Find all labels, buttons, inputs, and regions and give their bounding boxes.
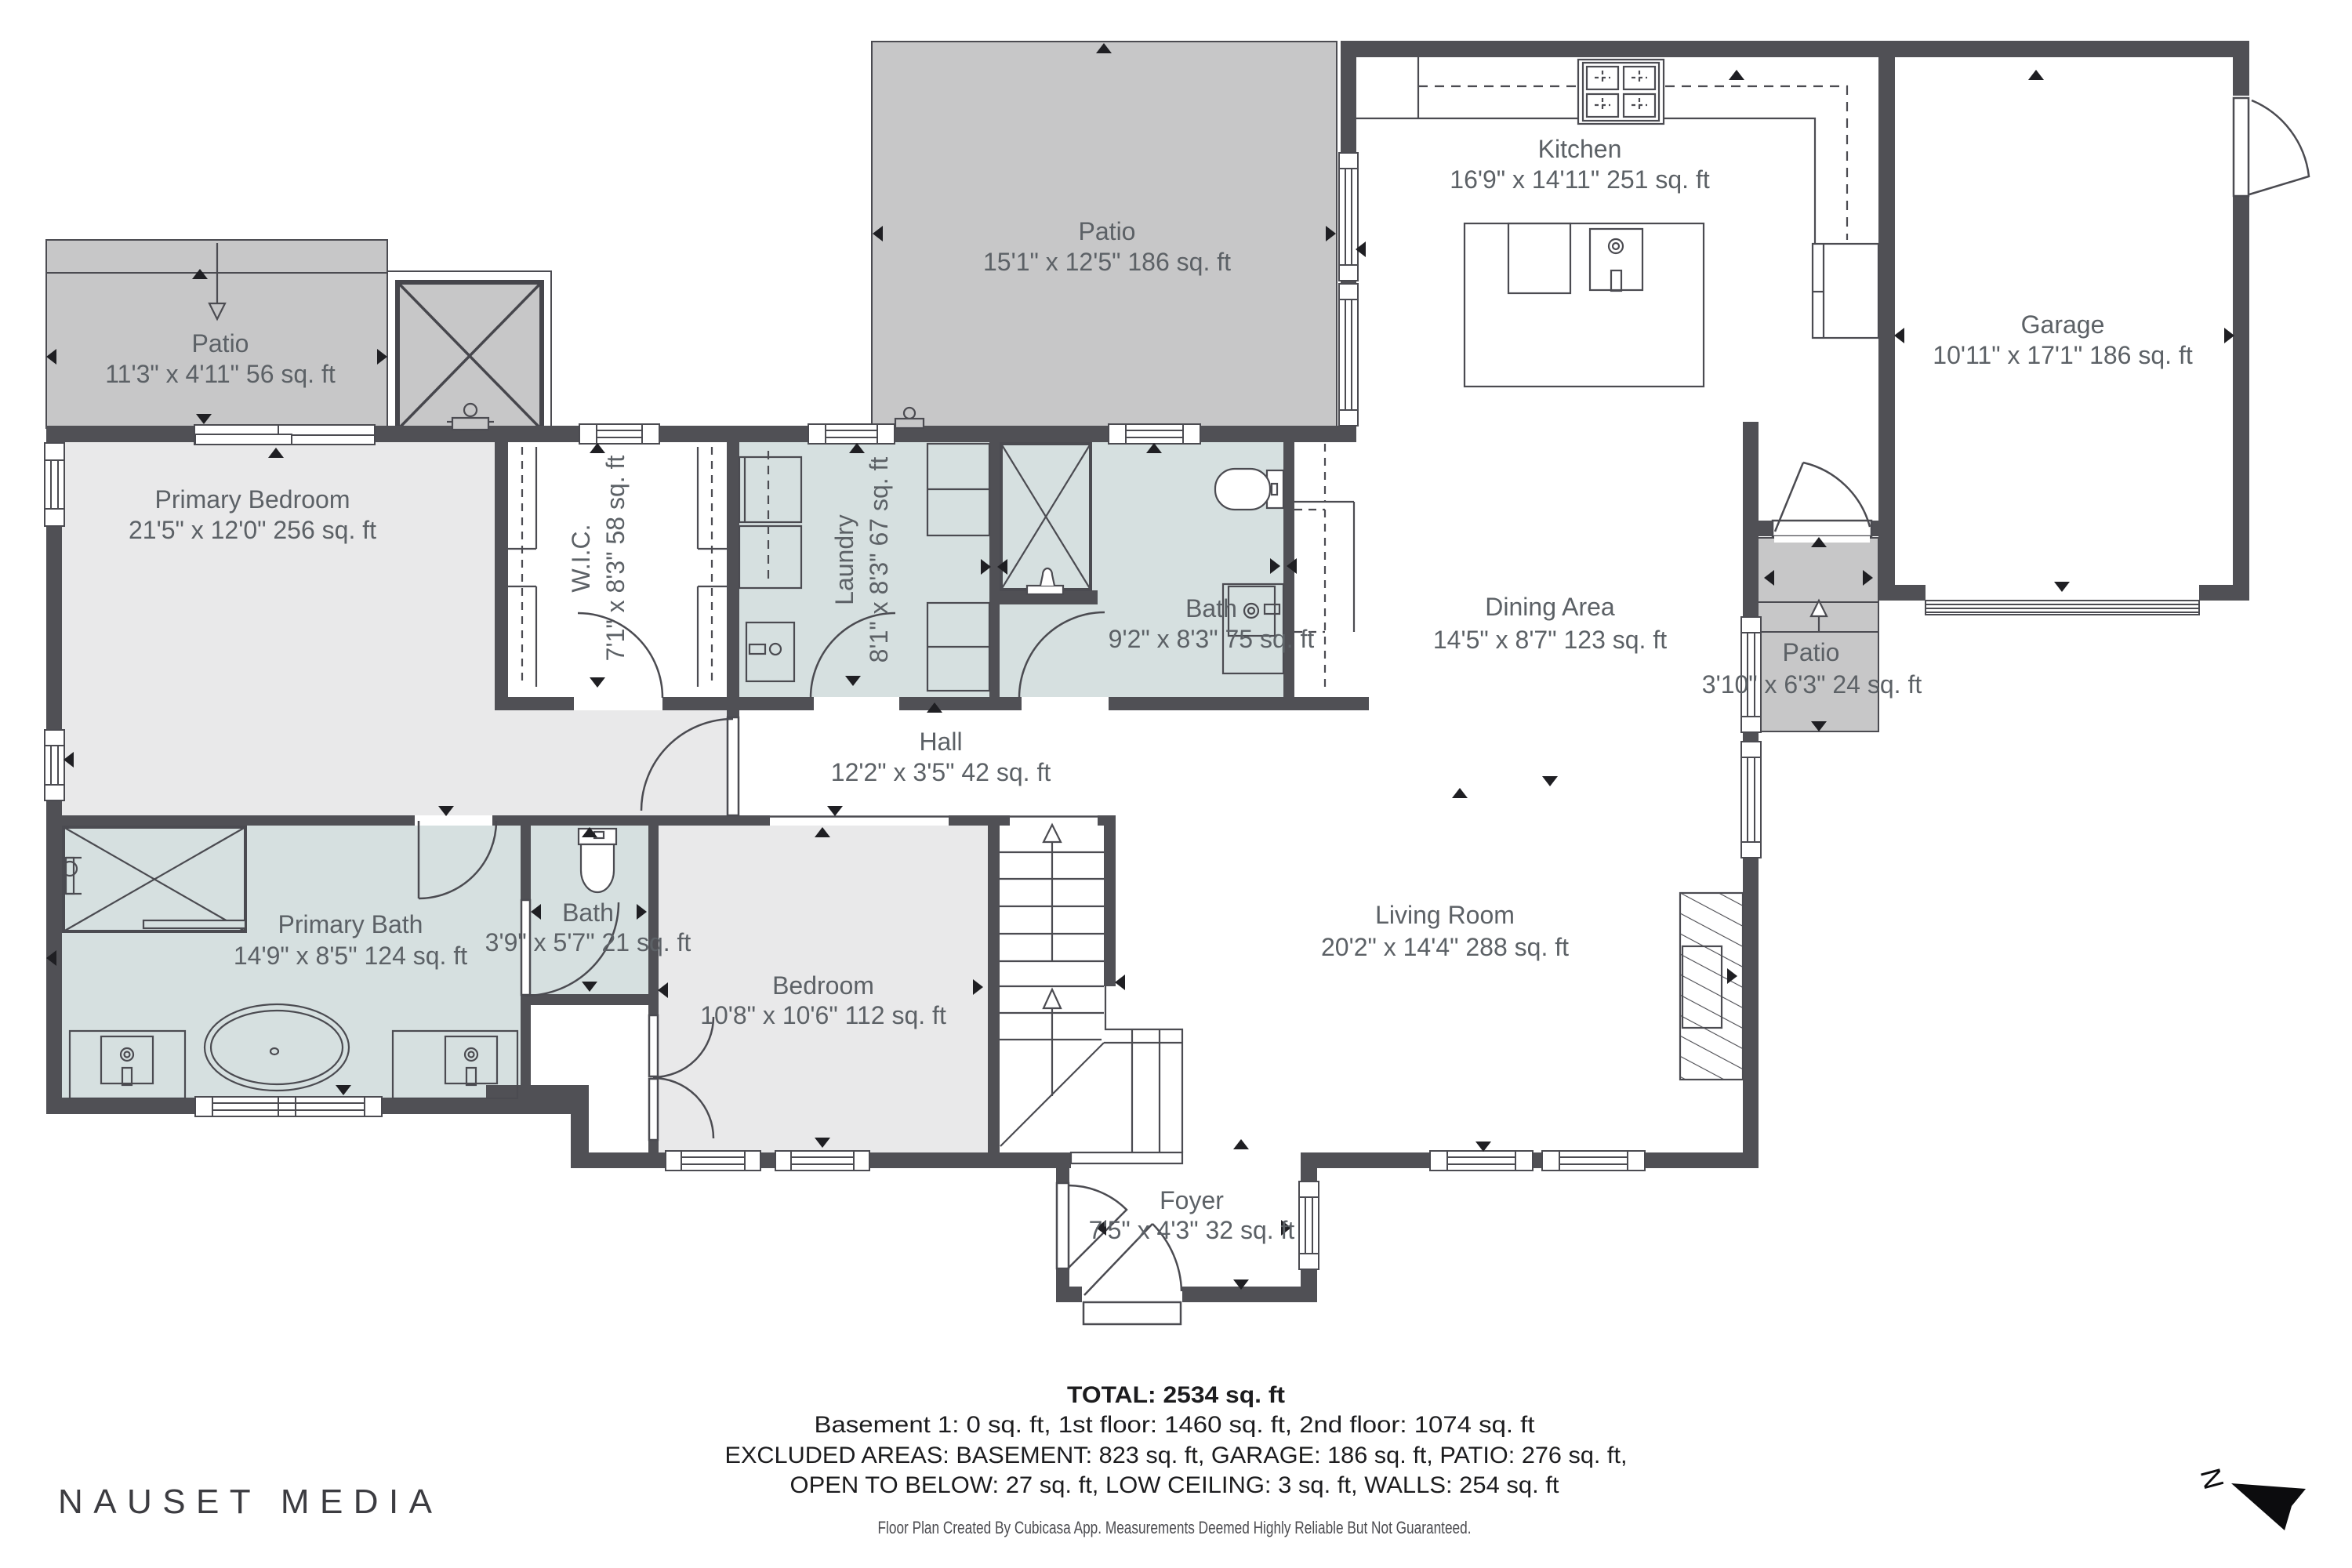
svg-text:Garage: Garage [2021,310,2105,339]
svg-text:Hall: Hall [919,728,962,756]
svg-text:14'9" x 8'5" 124 sq. ft: 14'9" x 8'5" 124 sq. ft [234,942,467,970]
svg-text:Bedroom: Bedroom [772,971,874,1000]
svg-text:20'2" x 14'4" 288 sq. ft: 20'2" x 14'4" 288 sq. ft [1321,933,1569,961]
svg-text:TOTAL: 2534 sq. ft: TOTAL: 2534 sq. ft [1067,1382,1285,1408]
svg-text:Bath: Bath [1185,594,1237,622]
svg-text:Floor Plan Created By Cubicasa: Floor Plan Created By Cubicasa App. Meas… [878,1518,1472,1537]
svg-text:EXCLUDED AREAS: BASEMENT: 823: EXCLUDED AREAS: BASEMENT: 823 sq. ft, GA… [725,1443,1628,1468]
svg-text:12'2" x 3'5" 42 sq. ft: 12'2" x 3'5" 42 sq. ft [831,758,1051,786]
svg-text:3'9" x 5'7" 21 sq. ft: 3'9" x 5'7" 21 sq. ft [485,928,691,956]
svg-text:7'1" x 8'3" 58 sq. ft: 7'1" x 8'3" 58 sq. ft [601,456,630,662]
svg-text:21'5" x 12'0" 256 sq. ft: 21'5" x 12'0" 256 sq. ft [129,516,376,544]
svg-text:14'5" x 8'7" 123 sq. ft: 14'5" x 8'7" 123 sq. ft [1433,626,1667,654]
svg-text:Patio: Patio [1079,217,1136,245]
svg-text:OPEN TO BELOW: 27 sq. ft, LOW: OPEN TO BELOW: 27 sq. ft, LOW CEILING: 3… [790,1472,1560,1498]
svg-text:Primary Bath: Primary Bath [278,910,423,938]
svg-text:11'3" x 4'11" 56 sq. ft: 11'3" x 4'11" 56 sq. ft [105,360,336,388]
svg-text:10'11" x 17'1" 186 sq. ft: 10'11" x 17'1" 186 sq. ft [1933,341,2193,369]
svg-text:16'9" x 14'11" 251 sq. ft: 16'9" x 14'11" 251 sq. ft [1450,165,1710,194]
svg-text:Basement 1: 0 sq. ft, 1st floo: Basement 1: 0 sq. ft, 1st floor: 1460 sq… [815,1412,1536,1438]
svg-text:W.I.C.: W.I.C. [567,524,595,592]
svg-text:Patio: Patio [192,329,249,358]
svg-text:NAUSET MEDIA: NAUSET MEDIA [58,1483,438,1521]
svg-text:7'5" x 4'3" 32 sq. ft: 7'5" x 4'3" 32 sq. ft [1089,1216,1295,1244]
svg-text:Bath: Bath [562,898,614,927]
svg-text:3'10" x 6'3" 24 sq. ft: 3'10" x 6'3" 24 sq. ft [1702,670,1922,699]
svg-text:10'8" x 10'6" 112 sq. ft: 10'8" x 10'6" 112 sq. ft [700,1001,946,1029]
svg-text:15'1" x 12'5" 186 sq. ft: 15'1" x 12'5" 186 sq. ft [983,248,1231,276]
svg-text:Foyer: Foyer [1160,1186,1224,1214]
svg-text:Dining Area: Dining Area [1485,593,1615,621]
svg-text:9'2" x 8'3" 75 sq. ft: 9'2" x 8'3" 75 sq. ft [1109,625,1315,653]
svg-text:8'1" x 8'3" 67 sq. ft: 8'1" x 8'3" 67 sq. ft [865,457,893,663]
svg-text:Kitchen: Kitchen [1538,135,1622,163]
svg-text:Primary Bedroom: Primary Bedroom [155,485,350,514]
svg-text:Patio: Patio [1783,638,1840,666]
svg-text:Laundry: Laundry [830,514,858,605]
svg-text:Living Room: Living Room [1375,901,1515,929]
